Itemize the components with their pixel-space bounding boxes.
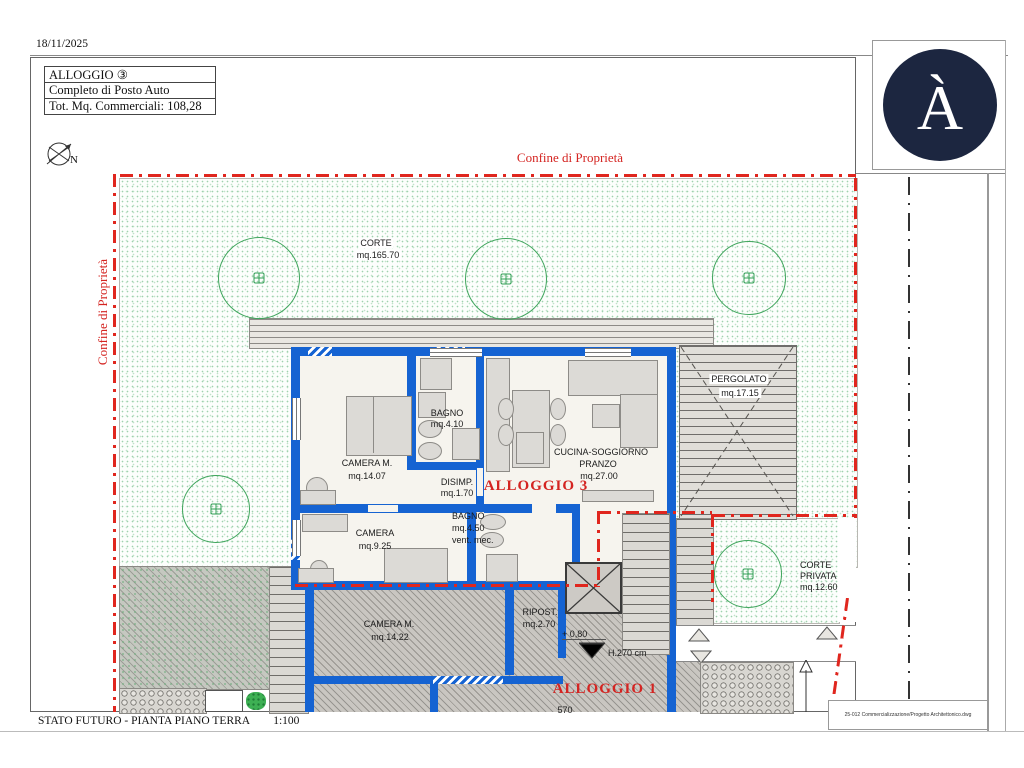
boundary-line xyxy=(295,584,598,587)
furniture-dresser xyxy=(300,490,336,505)
cucina-name2: PRANZO xyxy=(579,459,617,469)
dimension-570: 570 xyxy=(557,705,572,715)
window-icon xyxy=(292,520,301,556)
footer-title-text: STATO FUTURO - PIANTA PIANO TERRA xyxy=(38,715,249,727)
ripost-name: RIPOST. xyxy=(522,607,557,617)
cucina-name: CUCINA-SOGGIORNO xyxy=(554,447,648,457)
survey-triangle-icon xyxy=(688,628,710,643)
boundary-line xyxy=(712,514,857,517)
road-edge-line xyxy=(856,173,1006,174)
road-center-dashed-line xyxy=(908,177,910,712)
entry-mat xyxy=(205,690,243,712)
corte-area-label: mq.165.70 xyxy=(355,250,402,260)
tree-center-icon xyxy=(501,274,512,285)
bidet-icon xyxy=(418,442,442,460)
title-block: ALLOGGIO ③ Completo di Posto Auto Tot. M… xyxy=(44,66,216,115)
furniture-bed xyxy=(384,548,448,583)
bagno-area: mq.4.10 xyxy=(431,419,464,429)
shower-icon xyxy=(452,428,480,460)
boundary-label-left: Confine di Proprietà xyxy=(95,227,111,397)
corte-privata-area-label: mq.12.60 xyxy=(800,582,838,592)
furniture-chair xyxy=(550,424,566,446)
boundary-line xyxy=(711,514,714,602)
furniture-sofa xyxy=(620,394,658,448)
wall-segment xyxy=(313,676,433,684)
tree-center-icon xyxy=(254,273,265,284)
bagno-name: BAGNO xyxy=(431,408,464,418)
tree-icon xyxy=(714,540,782,608)
furniture-table xyxy=(592,404,620,428)
tree-icon xyxy=(218,237,300,319)
corte-privata-name: CORTE xyxy=(800,560,831,570)
camera-m-name: CAMERA M. xyxy=(342,458,393,468)
wall-segment xyxy=(505,590,514,675)
ripost-area: mq.2.70 xyxy=(523,619,556,629)
boundary-line xyxy=(120,174,856,177)
alloggio3-label: ALLOGGIO 3 xyxy=(484,478,589,495)
corte-privata-name2: PRIVATA xyxy=(800,571,837,581)
footer-title: STATO FUTURO - PIANTA PIANO TERRA 1:100 xyxy=(38,715,299,727)
window-icon xyxy=(585,348,631,357)
direction-arrow-icon xyxy=(798,660,814,712)
boundary-line xyxy=(597,511,600,587)
wall-hatch-segment xyxy=(308,347,332,356)
external-stair xyxy=(676,518,714,627)
drawing-sheet: 18/11/2025 ALLOGGIO ③ Completo di Posto … xyxy=(0,0,1024,768)
boundary-label-top: Confine di Proprietà xyxy=(517,150,623,166)
logo-box: À xyxy=(872,40,1006,170)
height-note: H.270 cm xyxy=(608,648,647,658)
camera-m2-area: mq.14.22 xyxy=(371,632,409,642)
tree-center-icon xyxy=(744,273,755,284)
shower-icon xyxy=(486,554,518,582)
north-label: N xyxy=(70,154,78,166)
camera-m-area: mq.14.07 xyxy=(348,471,386,481)
road-edge-line-2 xyxy=(987,173,989,731)
window-icon xyxy=(430,348,482,357)
bath-cabinet xyxy=(420,358,452,390)
boundary-line xyxy=(854,178,857,518)
title-block-area: Tot. Mq. Commerciali: 108,28 xyxy=(44,99,216,115)
bagno2-name: BAGNO xyxy=(452,511,485,521)
tree-center-icon xyxy=(211,504,222,515)
pergolato-cross-icon xyxy=(679,345,795,518)
footer-scale: 1:100 xyxy=(273,715,299,727)
stove-icon xyxy=(516,432,544,464)
furniture-desk xyxy=(302,514,348,532)
corte-name: CORTE xyxy=(358,238,393,248)
furniture-sofa xyxy=(568,360,658,396)
logo-letter: À xyxy=(883,49,997,161)
camera2-name: CAMERA xyxy=(356,528,395,538)
pebble-paving-right xyxy=(700,662,794,714)
window-icon xyxy=(292,398,301,440)
boundary-line xyxy=(113,174,116,712)
paving-hatch-strip xyxy=(676,662,700,712)
tv-cabinet xyxy=(582,490,654,502)
top-rule xyxy=(30,55,1008,56)
wall-segment xyxy=(305,590,314,712)
alloggio1-label: ALLOGGIO 1 xyxy=(553,681,658,698)
wall-segment xyxy=(484,504,532,513)
internal-stair xyxy=(622,513,670,655)
bagno2-area: mq.4.50 xyxy=(452,523,485,533)
tree-icon xyxy=(182,475,250,543)
furniture-bed-line xyxy=(373,397,374,453)
pebble-paving-left xyxy=(119,688,207,714)
tree-icon xyxy=(712,241,786,315)
terrace-paving xyxy=(249,318,714,349)
file-reference-box: 25-012 Commercializzazione/Progetto Arch… xyxy=(828,700,988,730)
furniture-bed xyxy=(346,396,412,456)
survey-triangle-icon xyxy=(816,626,838,641)
sheet-edge-line xyxy=(1005,40,1006,731)
camera-m2-name: CAMERA M. xyxy=(364,619,415,629)
door-opening xyxy=(368,505,398,512)
title-block-parking: Completo di Posto Auto xyxy=(44,83,216,99)
driveway-parking xyxy=(119,566,271,690)
bottom-rule xyxy=(0,731,1024,732)
level-080: + 0,80 xyxy=(562,629,606,640)
wall-segment xyxy=(430,684,438,712)
sheet-date: 18/11/2025 xyxy=(36,38,88,50)
boundary-line xyxy=(598,511,712,514)
wall-segment xyxy=(407,462,484,470)
wall-hatch-segment xyxy=(433,676,503,684)
door-opening xyxy=(477,468,483,496)
elevator-shaft-icon xyxy=(565,562,622,614)
pergolato-name: PERGOLATO xyxy=(709,374,768,384)
level-marker-filled-icon xyxy=(578,642,606,660)
disimp-name: DISIMP. xyxy=(441,477,473,487)
furniture-chair xyxy=(498,398,514,420)
tree-center-icon xyxy=(743,569,754,580)
furniture-dresser xyxy=(298,568,334,583)
furniture-chair xyxy=(498,424,514,446)
title-block-unit: ALLOGGIO ③ xyxy=(44,66,216,83)
bagno2-note: vent. mec. xyxy=(452,535,494,545)
disimp-area: mq.1.70 xyxy=(441,488,474,498)
furniture-chair xyxy=(550,398,566,420)
bush-icon xyxy=(246,692,266,710)
wall-segment xyxy=(667,347,676,518)
pergolato-area-label: mq.17.15 xyxy=(719,388,761,398)
camera2-area: mq.9.25 xyxy=(359,541,392,551)
tree-icon xyxy=(465,238,547,320)
logo-circle-icon: À xyxy=(883,49,997,161)
